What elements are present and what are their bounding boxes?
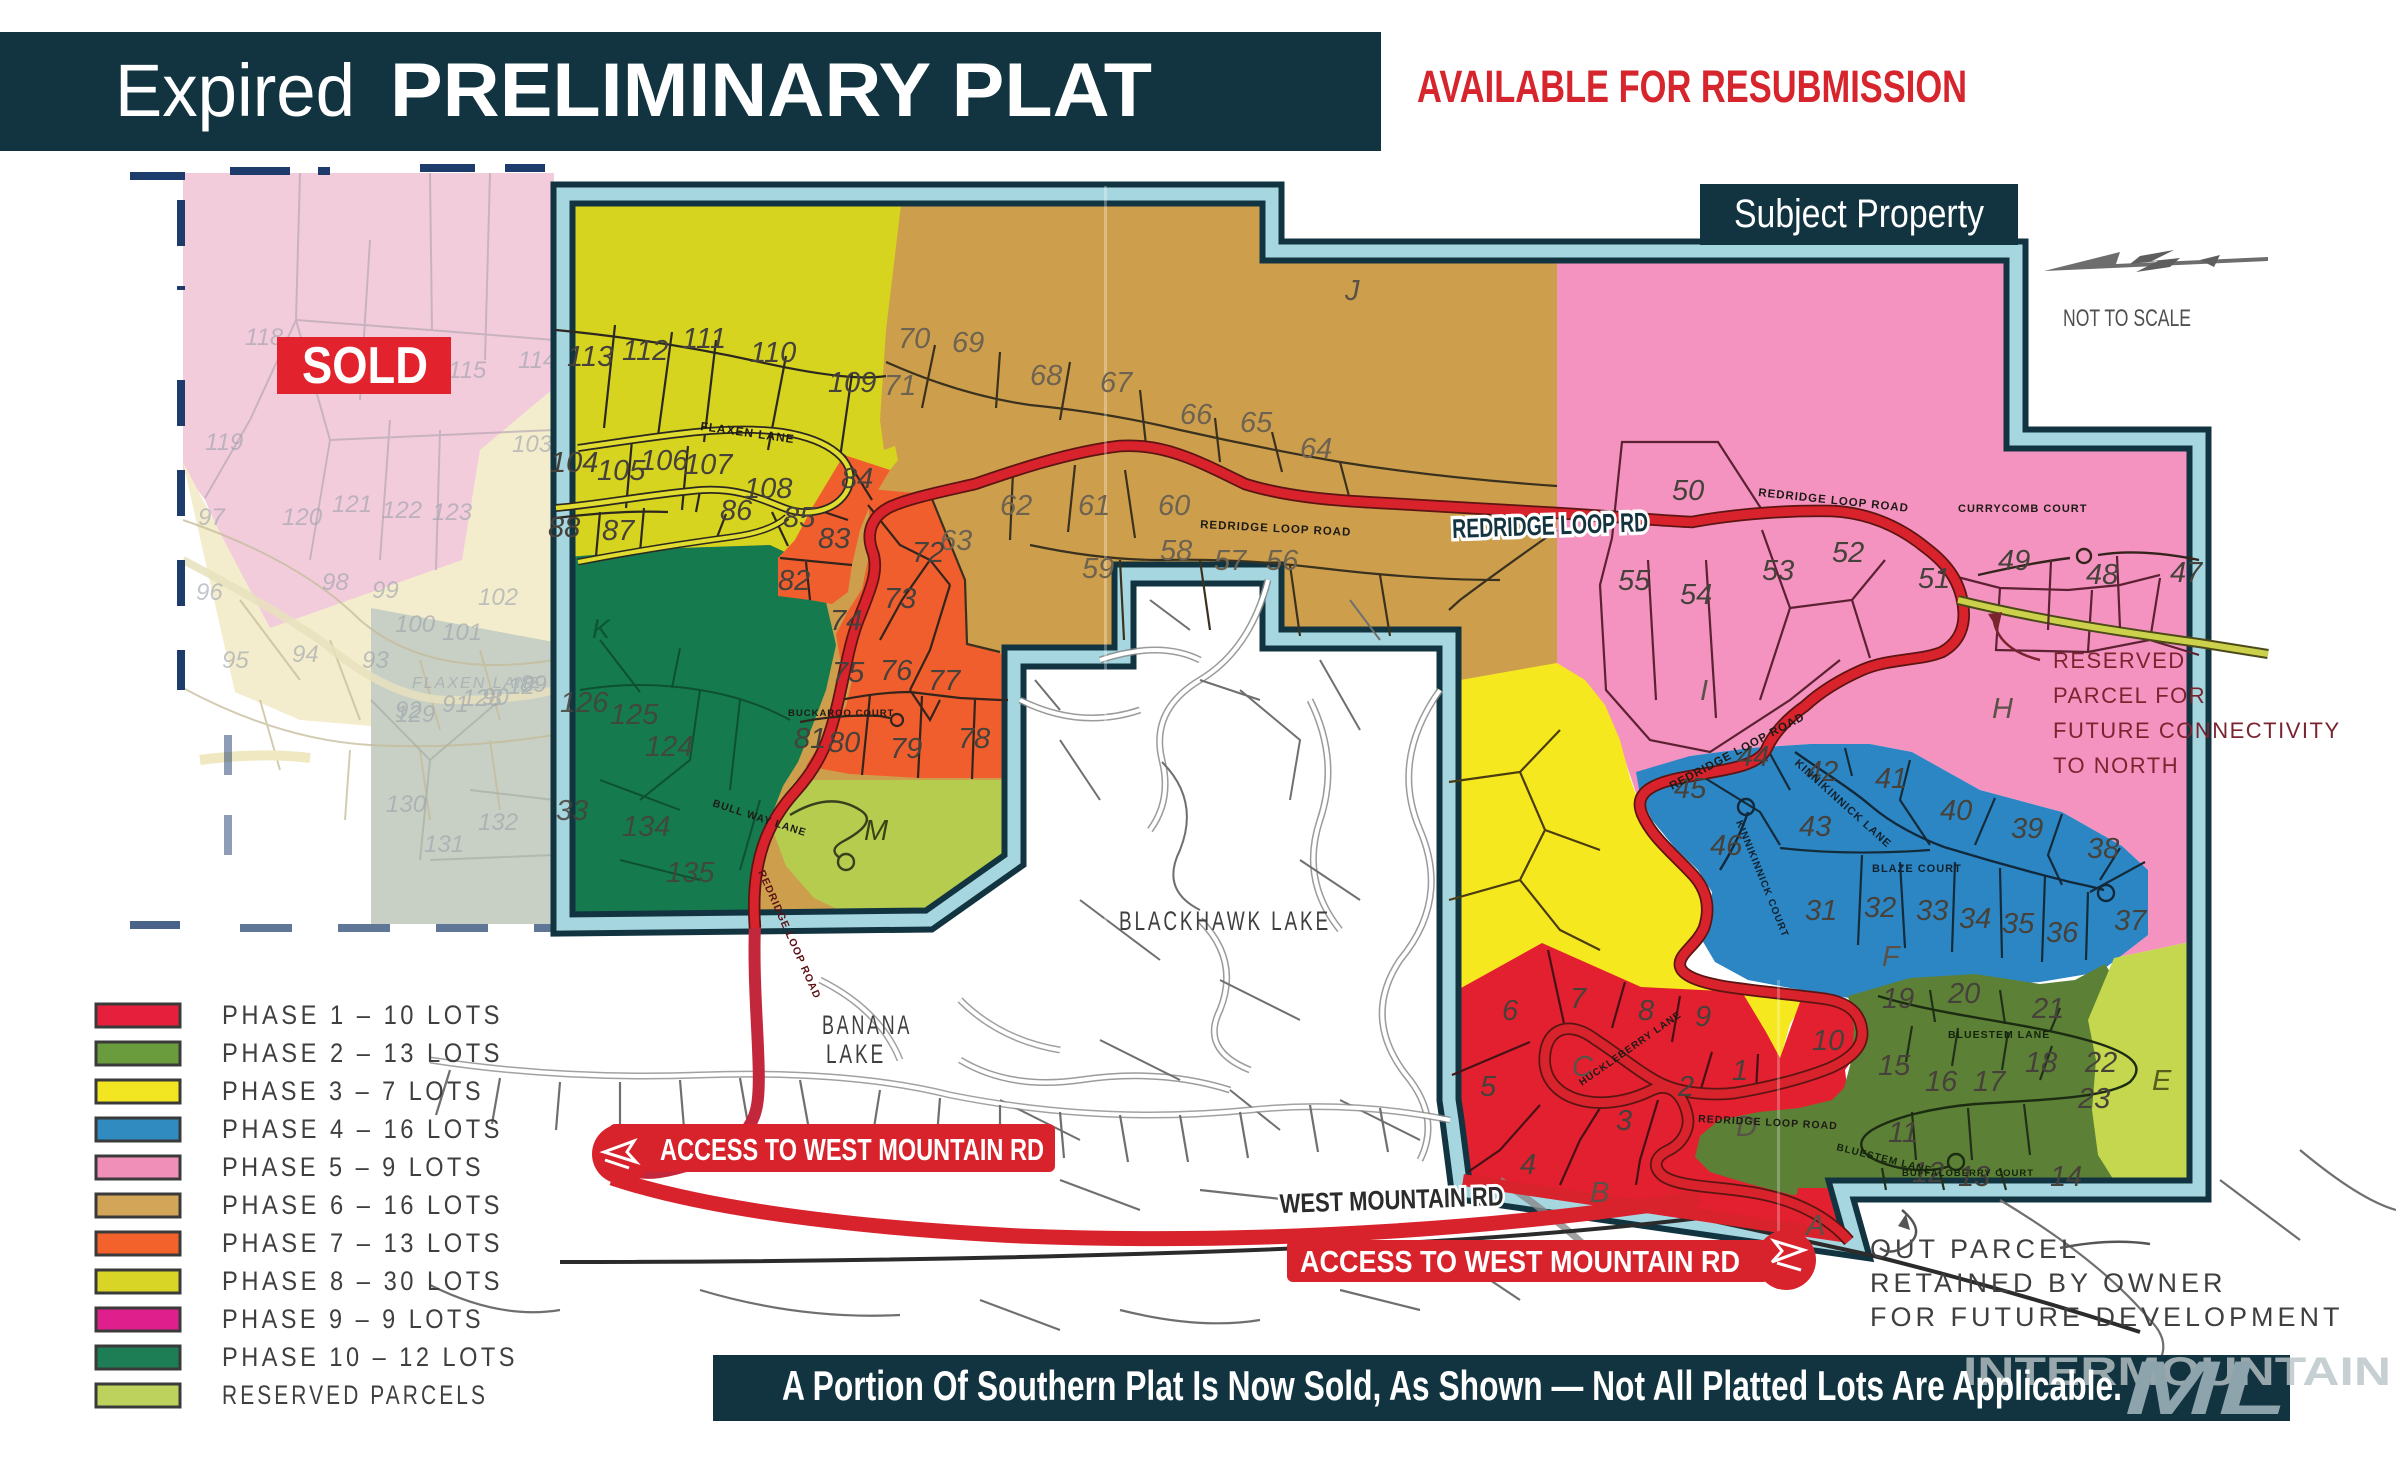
- svg-text:NOT TO SCALE: NOT TO SCALE: [2063, 305, 2191, 332]
- svg-text:83: 83: [818, 523, 850, 555]
- svg-text:47: 47: [2170, 557, 2204, 589]
- svg-text:130: 130: [386, 791, 427, 818]
- svg-text:84: 84: [841, 463, 873, 495]
- svg-text:16: 16: [1925, 1066, 1958, 1098]
- svg-text:134: 134: [622, 811, 670, 843]
- svg-text:33: 33: [1916, 895, 1948, 927]
- svg-text:72: 72: [912, 537, 944, 569]
- svg-text:RETAINED BY OWNER: RETAINED BY OWNER: [1870, 1268, 2227, 1298]
- svg-text:BUFFALOBERRY COURT: BUFFALOBERRY COURT: [1902, 1168, 2034, 1179]
- svg-text:81: 81: [794, 723, 826, 755]
- svg-text:94: 94: [292, 641, 319, 668]
- svg-text:79: 79: [890, 733, 922, 765]
- svg-text:60: 60: [1158, 490, 1190, 522]
- svg-text:PHASE 1 – 10 LOTS: PHASE 1 – 10 LOTS: [222, 1000, 503, 1030]
- svg-text:A Portion Of Southern Plat Is: A Portion Of Southern Plat Is Now Sold, …: [782, 1362, 2122, 1409]
- svg-text:64: 64: [1300, 433, 1332, 465]
- svg-text:70: 70: [898, 323, 930, 355]
- svg-text:82: 82: [778, 565, 810, 597]
- svg-text:87: 87: [602, 515, 636, 547]
- svg-text:48: 48: [2086, 559, 2118, 591]
- svg-text:ACCESS TO WEST MOUNTAIN RD: ACCESS TO WEST MOUNTAIN RD: [1300, 1244, 1740, 1279]
- svg-text:Expired: Expired: [115, 49, 355, 132]
- svg-text:PHASE 8 – 30 LOTS: PHASE 8 – 30 LOTS: [222, 1266, 503, 1296]
- svg-text:96: 96: [196, 579, 223, 606]
- svg-text:14: 14: [2050, 1161, 2082, 1193]
- svg-text:PHASE 7 – 13 LOTS: PHASE 7 – 13 LOTS: [222, 1228, 503, 1258]
- svg-text:99: 99: [372, 577, 399, 604]
- svg-text:55: 55: [1618, 565, 1651, 597]
- svg-text:TO NORTH: TO NORTH: [2053, 753, 2179, 778]
- svg-text:21: 21: [2031, 993, 2064, 1025]
- svg-text:H: H: [1992, 693, 2013, 725]
- svg-text:122: 122: [382, 497, 422, 524]
- svg-text:53: 53: [1762, 555, 1794, 587]
- svg-text:M: M: [864, 815, 889, 847]
- svg-text:52: 52: [1832, 537, 1864, 569]
- svg-text:54: 54: [1680, 579, 1712, 611]
- svg-text:11: 11: [1888, 1117, 1918, 1149]
- svg-text:128: 128: [462, 685, 503, 712]
- svg-text:65: 65: [1240, 407, 1273, 439]
- svg-text:105: 105: [597, 455, 646, 487]
- svg-text:85: 85: [783, 502, 816, 534]
- svg-text:68: 68: [1030, 360, 1062, 392]
- svg-text:BLAZE COURT: BLAZE COURT: [1872, 863, 1962, 875]
- svg-text:101: 101: [442, 619, 482, 646]
- svg-text:58: 58: [1160, 535, 1192, 567]
- svg-text:A: A: [1804, 1210, 1825, 1242]
- svg-text:AVAILABLE FOR RESUBMISSION: AVAILABLE FOR RESUBMISSION: [1417, 61, 1967, 112]
- svg-text:E: E: [2152, 1065, 2172, 1097]
- svg-text:33: 33: [556, 795, 588, 827]
- svg-text:39: 39: [2011, 813, 2043, 845]
- svg-text:PHASE 3 – 7 LOTS: PHASE 3 – 7 LOTS: [222, 1076, 484, 1106]
- svg-text:95: 95: [222, 647, 249, 674]
- svg-text:113: 113: [567, 341, 613, 373]
- svg-text:121: 121: [332, 491, 372, 518]
- svg-text:31: 31: [1805, 895, 1837, 927]
- svg-text:BUCKAROO COURT: BUCKAROO COURT: [788, 708, 894, 719]
- svg-text:PHASE 6 – 16 LOTS: PHASE 6 – 16 LOTS: [222, 1190, 503, 1220]
- svg-text:56: 56: [1266, 545, 1299, 577]
- svg-text:50: 50: [1672, 475, 1704, 507]
- svg-text:106: 106: [640, 445, 689, 477]
- svg-text:98: 98: [322, 569, 349, 596]
- svg-text:125: 125: [610, 699, 659, 731]
- svg-text:73: 73: [884, 583, 916, 615]
- svg-text:131: 131: [424, 831, 464, 858]
- svg-text:F: F: [1882, 941, 1902, 973]
- svg-text:57: 57: [1214, 545, 1248, 577]
- svg-text:75: 75: [832, 657, 865, 689]
- svg-text:J: J: [1344, 275, 1360, 307]
- svg-text:93: 93: [362, 647, 389, 674]
- svg-text:34: 34: [1959, 903, 1991, 935]
- svg-text:102: 102: [478, 584, 518, 611]
- svg-text:3: 3: [1616, 1105, 1632, 1137]
- svg-text:119: 119: [205, 429, 243, 456]
- svg-text:97: 97: [198, 504, 226, 531]
- svg-text:40: 40: [1940, 795, 1972, 827]
- svg-text:ML: ML: [2125, 1346, 2287, 1431]
- svg-text:115: 115: [448, 357, 487, 384]
- svg-text:12: 12: [508, 673, 535, 700]
- svg-text:80: 80: [828, 727, 860, 759]
- svg-text:103: 103: [512, 431, 553, 458]
- svg-text:15: 15: [1878, 1050, 1911, 1082]
- svg-text:1: 1: [1732, 1055, 1748, 1087]
- svg-text:RESERVED: RESERVED: [2053, 648, 2186, 673]
- svg-text:22: 22: [2084, 1047, 2117, 1079]
- svg-text:FUTURE CONNECTIVITY: FUTURE CONNECTIVITY: [2053, 718, 2341, 743]
- svg-text:ACCESS TO WEST MOUNTAIN RD: ACCESS TO WEST MOUNTAIN RD: [660, 1132, 1044, 1167]
- svg-text:76: 76: [880, 655, 913, 687]
- svg-text:BANANA: BANANA: [822, 1010, 912, 1040]
- svg-text:7: 7: [1570, 983, 1588, 1015]
- svg-text:PRELIMINARY PLAT: PRELIMINARY PLAT: [390, 48, 1152, 133]
- svg-text:110: 110: [750, 337, 796, 369]
- svg-text:111: 111: [682, 323, 726, 355]
- svg-text:126: 126: [560, 687, 609, 719]
- svg-text:88: 88: [548, 512, 580, 544]
- svg-text:32: 32: [1864, 892, 1896, 924]
- svg-text:CURRYCOMB COURT: CURRYCOMB COURT: [1958, 503, 2087, 515]
- svg-text:77: 77: [928, 665, 962, 697]
- svg-text:104: 104: [550, 447, 598, 479]
- svg-text:5: 5: [1480, 1071, 1497, 1103]
- svg-text:RESERVED PARCELS: RESERVED PARCELS: [222, 1380, 488, 1410]
- svg-text:129: 129: [395, 701, 435, 728]
- svg-text:63: 63: [940, 525, 972, 557]
- svg-text:66: 66: [1180, 399, 1213, 431]
- svg-text:PHASE 9 – 9 LOTS: PHASE 9 – 9 LOTS: [222, 1304, 484, 1334]
- svg-text:51: 51: [1918, 563, 1950, 595]
- svg-text:K: K: [592, 614, 611, 644]
- svg-text:PHASE 4 – 16 LOTS: PHASE 4 – 16 LOTS: [222, 1114, 503, 1144]
- svg-text:100: 100: [395, 611, 436, 638]
- svg-text:23: 23: [2077, 1083, 2110, 1115]
- svg-text:PHASE 2 – 13 LOTS: PHASE 2 – 13 LOTS: [222, 1038, 503, 1068]
- svg-text:43: 43: [1799, 811, 1831, 843]
- svg-text:PHASE 5 – 9 LOTS: PHASE 5 – 9 LOTS: [222, 1152, 484, 1182]
- svg-text:59: 59: [1082, 553, 1114, 585]
- svg-text:69: 69: [952, 327, 984, 359]
- svg-text:B: B: [1590, 1177, 1609, 1209]
- svg-text:20: 20: [1947, 978, 1980, 1010]
- svg-text:BLACKHAWK LAKE: BLACKHAWK LAKE: [1119, 906, 1331, 936]
- svg-text:BLUESTEM LANE: BLUESTEM LANE: [1948, 1029, 2050, 1041]
- svg-text:67: 67: [1100, 367, 1134, 399]
- svg-text:49: 49: [1998, 545, 2030, 577]
- svg-text:6: 6: [1502, 995, 1519, 1027]
- svg-text:41: 41: [1875, 763, 1907, 795]
- svg-text:Subject Property: Subject Property: [1734, 192, 1984, 236]
- svg-text:74: 74: [830, 605, 862, 637]
- svg-text:2: 2: [1677, 1071, 1694, 1103]
- svg-text:124: 124: [645, 731, 693, 763]
- svg-text:109: 109: [828, 367, 876, 399]
- svg-text:SOLD: SOLD: [302, 337, 428, 395]
- svg-text:135: 135: [666, 857, 715, 889]
- svg-text:107: 107: [684, 449, 734, 481]
- svg-text:19: 19: [1882, 983, 1914, 1015]
- svg-text:112: 112: [622, 335, 668, 367]
- svg-text:123: 123: [432, 499, 473, 526]
- svg-text:35: 35: [2002, 908, 2035, 940]
- svg-text:9: 9: [1695, 1001, 1711, 1033]
- svg-text:86: 86: [720, 495, 753, 527]
- svg-text:18: 18: [2025, 1047, 2057, 1079]
- svg-text:62: 62: [1000, 490, 1032, 522]
- svg-text:71: 71: [884, 370, 916, 402]
- svg-text:132: 132: [478, 809, 518, 836]
- svg-text:78: 78: [958, 723, 990, 755]
- svg-text:4: 4: [1520, 1149, 1536, 1181]
- svg-text:17: 17: [1973, 1066, 2007, 1098]
- svg-text:PHASE 10 – 12 LOTS: PHASE 10 – 12 LOTS: [222, 1342, 518, 1372]
- svg-text:8: 8: [1638, 995, 1654, 1027]
- svg-text:FOR FUTURE DEVELOPMENT: FOR FUTURE DEVELOPMENT: [1870, 1302, 2344, 1332]
- svg-text:I: I: [1700, 675, 1708, 707]
- svg-text:37: 37: [2114, 905, 2148, 937]
- svg-text:36: 36: [2046, 917, 2079, 949]
- svg-text:61: 61: [1078, 490, 1110, 522]
- svg-text:120: 120: [282, 504, 323, 531]
- svg-text:38: 38: [2087, 833, 2119, 865]
- svg-text:LAKE: LAKE: [826, 1039, 886, 1069]
- svg-text:PARCEL FOR: PARCEL FOR: [2053, 683, 2206, 708]
- svg-text:10: 10: [1812, 1025, 1844, 1057]
